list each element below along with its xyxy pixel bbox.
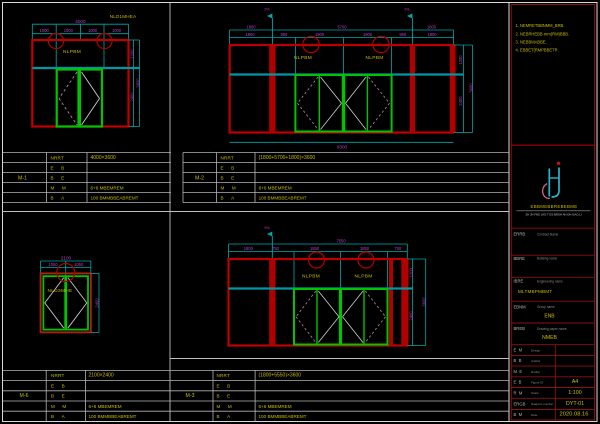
svg-text:4. EBBET(RMPBBETR.: 4. EBBET(RMPBBETR. xyxy=(516,48,559,53)
svg-text:IBRE: IBRE xyxy=(514,279,524,284)
svg-text:NLPBM: NLPBM xyxy=(365,55,383,61)
svg-text:9%: 9% xyxy=(264,8,270,12)
svg-text:M M: M M xyxy=(221,185,236,190)
svg-text:750: 750 xyxy=(272,246,280,251)
svg-text:ERGB: ERGB xyxy=(514,401,526,406)
svg-text:NLD3MHE: NLD3MHE xyxy=(47,288,72,294)
svg-text:2100: 2100 xyxy=(61,256,72,261)
svg-text:NRRT: NRRT xyxy=(51,373,64,378)
svg-text:2. NEBRHEBB·mm(RM)BBB.: 2. NEBRHEBB·mm(RM)BBB. xyxy=(516,32,570,37)
svg-text:ZH JN FNG JAG T ES BRGH AN DH: ZH JN FNG JAG T ES BRGH AN DH GAO.LI xyxy=(526,213,582,217)
svg-text:4000: 4000 xyxy=(75,19,86,24)
svg-text:M-6: M-6 xyxy=(20,393,29,399)
svg-text:M E: M E xyxy=(514,369,523,374)
svg-text:E B: E B xyxy=(514,380,522,385)
svg-text:Contract Name: Contract Name xyxy=(537,232,559,236)
svg-text:M-1: M-1 xyxy=(18,176,27,182)
svg-text:Drawing paper name: Drawing paper name xyxy=(537,327,567,331)
svg-text:EBNM: EBNM xyxy=(514,304,527,309)
svg-text:NLPBM: NLPBM xyxy=(63,49,81,55)
svg-text:NLPBM: NLPBM xyxy=(294,55,312,61)
svg-text:1800: 1800 xyxy=(427,25,437,30)
svg-text:1000: 1000 xyxy=(40,28,50,33)
svg-text:1:100: 1:100 xyxy=(568,390,582,396)
svg-text:1000: 1000 xyxy=(112,28,122,33)
svg-text:3600: 3600 xyxy=(469,83,474,93)
svg-text:3. NEBBMABBE.: 3. NEBBMABBE. xyxy=(516,40,547,45)
svg-text:6+6 MBEMREM: 6+6 MBEMREM xyxy=(259,404,292,409)
svg-text:Engineering name: Engineering name xyxy=(537,279,563,283)
svg-text:Building name: Building name xyxy=(537,257,557,261)
svg-text:2100×2400: 2100×2400 xyxy=(89,373,114,379)
svg-text:9%: 9% xyxy=(264,226,270,230)
svg-text:E M: E M xyxy=(514,348,523,353)
svg-text:M M: M M xyxy=(51,404,66,409)
svg-text:1800: 1800 xyxy=(427,32,437,37)
svg-text:5700: 5700 xyxy=(337,25,347,30)
svg-text:B B: B B xyxy=(514,358,522,363)
svg-text:9300: 9300 xyxy=(337,144,348,149)
svg-text:NLD1MHEA: NLD1MHEA xyxy=(110,14,137,19)
svg-text:B A: B A xyxy=(221,195,236,200)
svg-text:M-3: M-3 xyxy=(186,393,195,399)
svg-text:DYT-01: DYT-01 xyxy=(566,401,584,407)
svg-text:3600: 3600 xyxy=(135,78,140,88)
svg-text:1000: 1000 xyxy=(64,28,74,33)
svg-text:NRRT: NRRT xyxy=(51,155,64,160)
svg-text:(1800+5550)×3600: (1800+5550)×3600 xyxy=(259,373,302,379)
svg-text:1850: 1850 xyxy=(310,246,320,251)
svg-text:1850: 1850 xyxy=(360,246,370,251)
svg-text:6+6 MBEMREM: 6+6 MBEMREM xyxy=(91,185,124,190)
svg-text:950: 950 xyxy=(399,32,407,37)
svg-text:Group name: Group name xyxy=(537,305,555,309)
svg-text:BBRE: BBRE xyxy=(514,256,526,261)
svg-text:M-2: M-2 xyxy=(195,176,204,182)
svg-text:B E: B E xyxy=(51,175,65,180)
svg-text:Drafter: Drafter xyxy=(531,370,540,374)
svg-text:100 BMMBBEABREMT: 100 BMMBBEABREMT xyxy=(89,414,137,419)
svg-text:3600: 3600 xyxy=(422,297,427,307)
svg-text:2400: 2400 xyxy=(95,298,100,308)
svg-text:MLTMBPMBMT: MLTMBPMBMT xyxy=(518,289,552,294)
svg-text:NRRT: NRRT xyxy=(217,373,230,378)
svg-text:B A: B A xyxy=(51,414,66,419)
svg-text:1800: 1800 xyxy=(244,246,254,251)
svg-text:1200: 1200 xyxy=(458,55,463,65)
svg-text:E B: E B xyxy=(51,383,65,388)
svg-text:Scale: Scale xyxy=(531,391,539,395)
svg-text:(1800+5700+1800)×3600: (1800+5700+1800)×3600 xyxy=(259,155,316,161)
svg-text:E B: E B xyxy=(217,383,231,388)
svg-text:1000: 1000 xyxy=(88,28,98,33)
svg-text:4000×3600: 4000×3600 xyxy=(91,155,116,161)
svg-text:1. NEMRETBBNMM_BRB.: 1. NEMRETBBNMM_BRB. xyxy=(516,23,565,28)
svg-text:E B: E B xyxy=(51,165,65,170)
svg-text:B E: B E xyxy=(51,394,65,399)
svg-text:2400: 2400 xyxy=(129,92,134,102)
svg-text:1050: 1050 xyxy=(74,262,84,267)
svg-text:NLPBM: NLPBM xyxy=(354,274,372,280)
svg-text:E B: E B xyxy=(221,165,235,170)
svg-text:BREB: BREB xyxy=(514,326,526,331)
svg-text:6+6 MBEMREM: 6+6 MBEMREM xyxy=(89,404,122,409)
svg-text:NMEB: NMEB xyxy=(542,335,558,341)
svg-text:Design: Design xyxy=(531,348,541,352)
svg-text:M M: M M xyxy=(217,404,232,409)
svg-text:EBBMEBBREBEBME: EBBMEBBREBEBME xyxy=(531,204,578,209)
svg-text:R M: R M xyxy=(514,390,523,395)
svg-text:6+6 MBEMREM: 6+6 MBEMREM xyxy=(259,185,292,190)
svg-text:2400: 2400 xyxy=(458,96,463,106)
svg-text:1900: 1900 xyxy=(315,32,325,37)
svg-text:Date: Date xyxy=(531,413,538,417)
svg-text:750: 750 xyxy=(394,246,402,251)
svg-text:2020.08.16: 2020.08.16 xyxy=(559,412,588,418)
svg-text:B E: B E xyxy=(221,175,235,180)
svg-text:950: 950 xyxy=(280,32,288,37)
svg-text:1200: 1200 xyxy=(409,267,414,277)
svg-text:100 BMMBBEABREMT: 100 BMMBBEABREMT xyxy=(91,195,139,200)
svg-text:Auditor: Auditor xyxy=(531,359,541,363)
svg-text:1050: 1050 xyxy=(48,262,58,267)
svg-text:B A: B A xyxy=(51,195,66,200)
svg-text:ENB: ENB xyxy=(544,313,555,319)
svg-text:Figure ID: Figure ID xyxy=(531,380,544,384)
svg-text:1200: 1200 xyxy=(129,49,134,59)
svg-text:A4: A4 xyxy=(572,379,579,385)
svg-text:1800: 1800 xyxy=(246,25,256,30)
svg-text:B A: B A xyxy=(217,414,232,419)
svg-text:B M: B M xyxy=(514,412,523,417)
svg-text:100 BMMBBEABREMT: 100 BMMBBEABREMT xyxy=(259,195,307,200)
svg-text:9%: 9% xyxy=(404,8,410,12)
svg-text:1800: 1800 xyxy=(245,32,255,37)
svg-text:100 BMMBBEABREMT: 100 BMMBBEABREMT xyxy=(259,414,307,419)
svg-text:NRRT: NRRT xyxy=(221,155,234,160)
svg-text:M M: M M xyxy=(51,185,66,190)
svg-text:1900: 1900 xyxy=(363,32,373,37)
svg-text:2400: 2400 xyxy=(409,311,414,321)
svg-text:Diagram number: Diagram number xyxy=(531,402,553,406)
svg-text:B E: B E xyxy=(217,394,231,399)
svg-text:ERRB: ERRB xyxy=(514,232,526,237)
svg-text:NLPBM: NLPBM xyxy=(302,274,320,280)
svg-text:7550: 7550 xyxy=(336,239,346,244)
